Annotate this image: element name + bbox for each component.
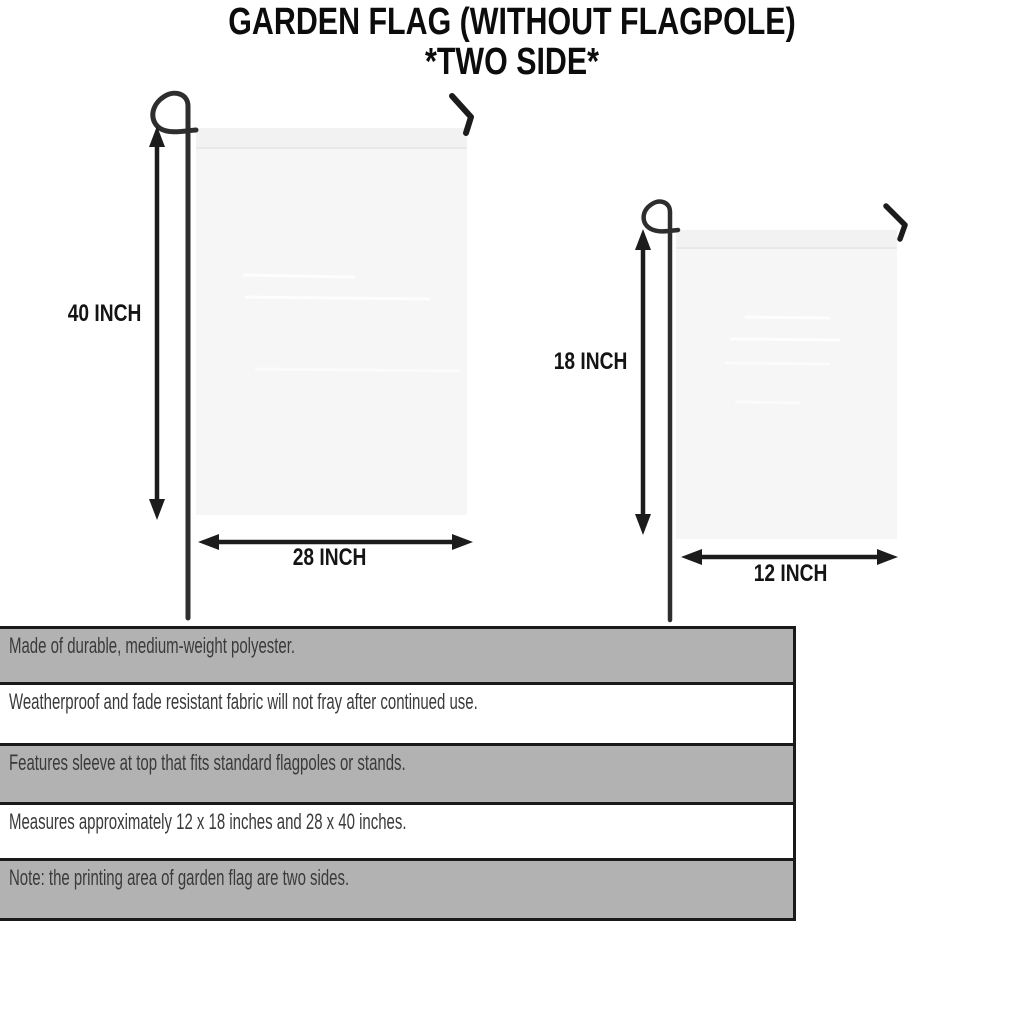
spec-row-text: Measures approximately 12 x 18 inches an…	[9, 809, 407, 835]
spec-row-text: Note: the printing area of garden flag a…	[9, 865, 349, 891]
spec-row-weatherproof: Weatherproof and fade resistant fabric w…	[0, 682, 793, 743]
small-flag-crease	[730, 339, 840, 340]
large-flag-height-arrow	[149, 126, 165, 520]
small-flag-canvas	[676, 230, 897, 539]
large-flag-width-label: 28 INCH	[284, 546, 376, 570]
spec-row-sleeve: Features sleeve at top that fits standar…	[0, 743, 793, 802]
large-flag-crease	[255, 369, 460, 371]
large-flag-height-label: 40 INCH	[59, 302, 151, 326]
spec-row-text: Weatherproof and fade resistant fabric w…	[9, 689, 478, 715]
small-flag-crease	[735, 402, 800, 403]
small-flag-height-label: 18 INCH	[545, 350, 637, 374]
spec-table: Made of durable, medium-weight polyester…	[0, 626, 796, 921]
spec-row-material: Made of durable, medium-weight polyester…	[0, 626, 793, 682]
small-flag-width-label: 12 INCH	[745, 562, 837, 586]
small-flag-crease	[725, 363, 830, 364]
large-flag-pole	[153, 93, 196, 618]
spec-row-text: Made of durable, medium-weight polyester…	[9, 633, 295, 659]
large-flag-crease	[245, 297, 430, 299]
large-flag-crease	[243, 275, 355, 277]
large-flag-sleeve	[196, 128, 467, 148]
small-flag-height-arrow	[635, 229, 651, 535]
spec-row-measurements: Measures approximately 12 x 18 inches an…	[0, 802, 793, 858]
small-flag-crease	[745, 317, 830, 318]
large-flag-hanger-hook	[452, 96, 471, 133]
large-flag-canvas	[196, 128, 467, 515]
small-flag-sleeve	[676, 230, 897, 248]
page-root: GARDEN FLAG (WITHOUT FLAGPOLE) *TWO SIDE…	[0, 0, 1024, 1024]
spec-row-note: Note: the printing area of garden flag a…	[0, 858, 793, 918]
spec-row-text: Features sleeve at top that fits standar…	[9, 750, 406, 776]
small-flag-pole	[644, 202, 678, 620]
